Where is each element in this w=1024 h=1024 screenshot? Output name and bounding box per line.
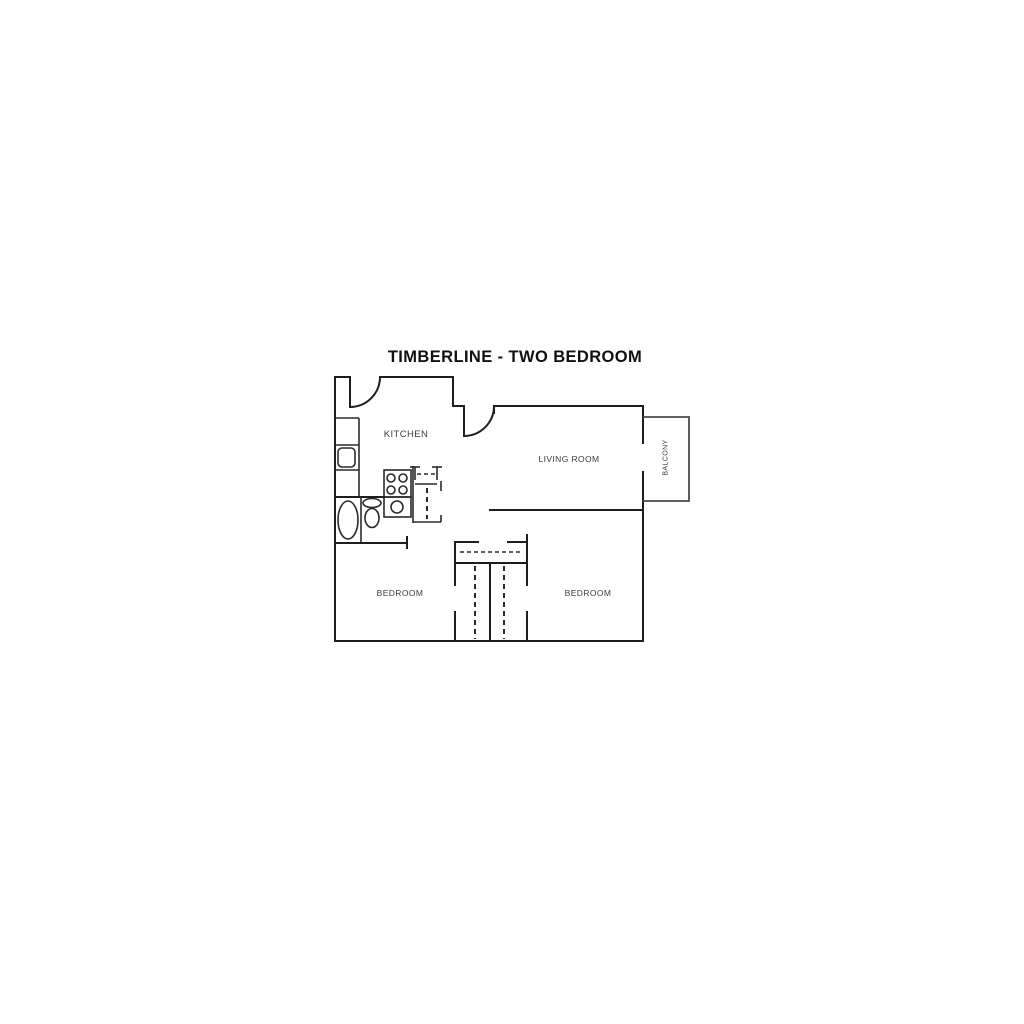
kitchen-label: KITCHEN xyxy=(378,429,434,440)
living-room-label: LIVING ROOM xyxy=(532,454,606,464)
toilet xyxy=(363,499,381,528)
stove xyxy=(384,470,411,497)
floor-plan-page: TIMBERLINE - TWO BEDROOM KITCHEN LIVING … xyxy=(0,0,1024,1024)
pantry-closet xyxy=(410,466,442,523)
kitchen-counter xyxy=(335,418,359,497)
plan-title: TIMBERLINE - TWO BEDROOM xyxy=(335,348,695,367)
bedroom-left-label: BEDROOM xyxy=(369,588,431,598)
bedroom-closets xyxy=(455,535,527,641)
bathtub xyxy=(338,497,361,543)
bedroom-right-label: BEDROOM xyxy=(557,588,619,598)
floor-plan-drawing xyxy=(0,0,1024,1024)
entry-door xyxy=(350,377,380,407)
balcony-label: BALCONY xyxy=(663,428,670,488)
kitchen-sink xyxy=(384,497,411,517)
living-room-door xyxy=(464,406,494,436)
bathroom xyxy=(335,497,407,548)
kitchen-appliance-icon xyxy=(338,448,355,467)
